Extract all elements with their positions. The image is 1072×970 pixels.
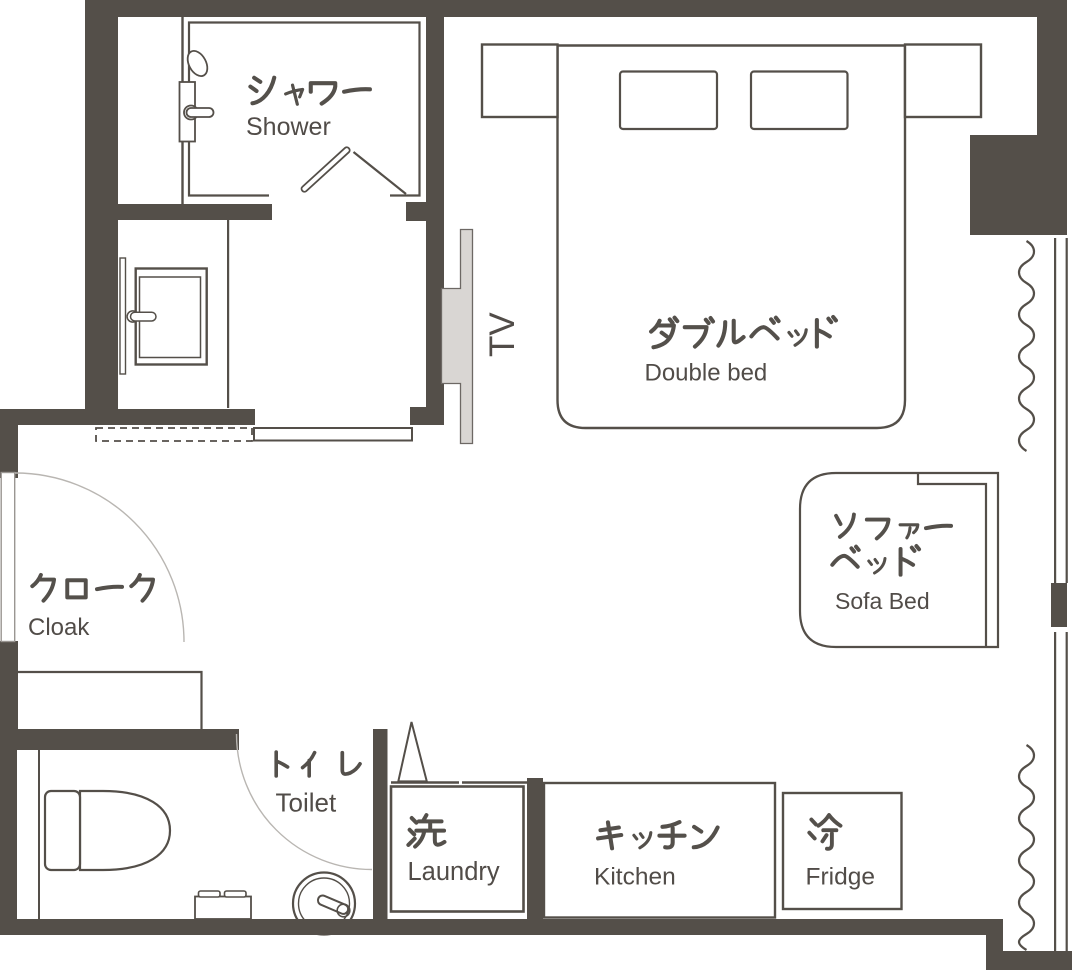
svg-text:Kitchen: Kitchen [594,864,676,891]
svg-text:Laundry: Laundry [408,858,500,886]
svg-text:Fridge: Fridge [806,864,875,891]
svg-text:TV: TV [483,312,522,357]
svg-text:Sofa Bed: Sofa Bed [835,588,930,614]
svg-text:Shower: Shower [246,113,331,141]
svg-text:Toilet: Toilet [276,788,337,818]
svg-text:Double bed: Double bed [645,360,768,387]
svg-text:Cloak: Cloak [28,614,90,641]
